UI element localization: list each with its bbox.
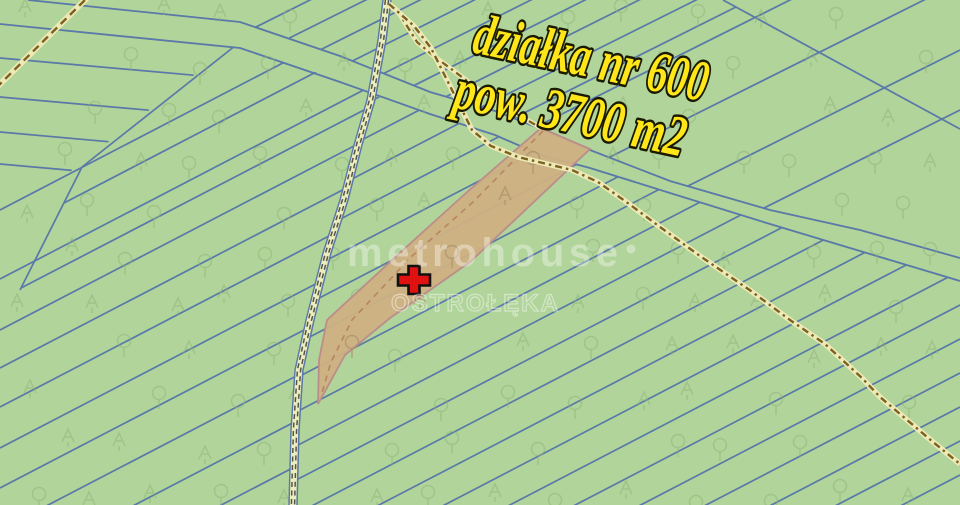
svg-text:metrohouse: metrohouse <box>347 231 623 275</box>
svg-text:OSTROŁĘKA: OSTROŁĘKA <box>391 290 561 317</box>
